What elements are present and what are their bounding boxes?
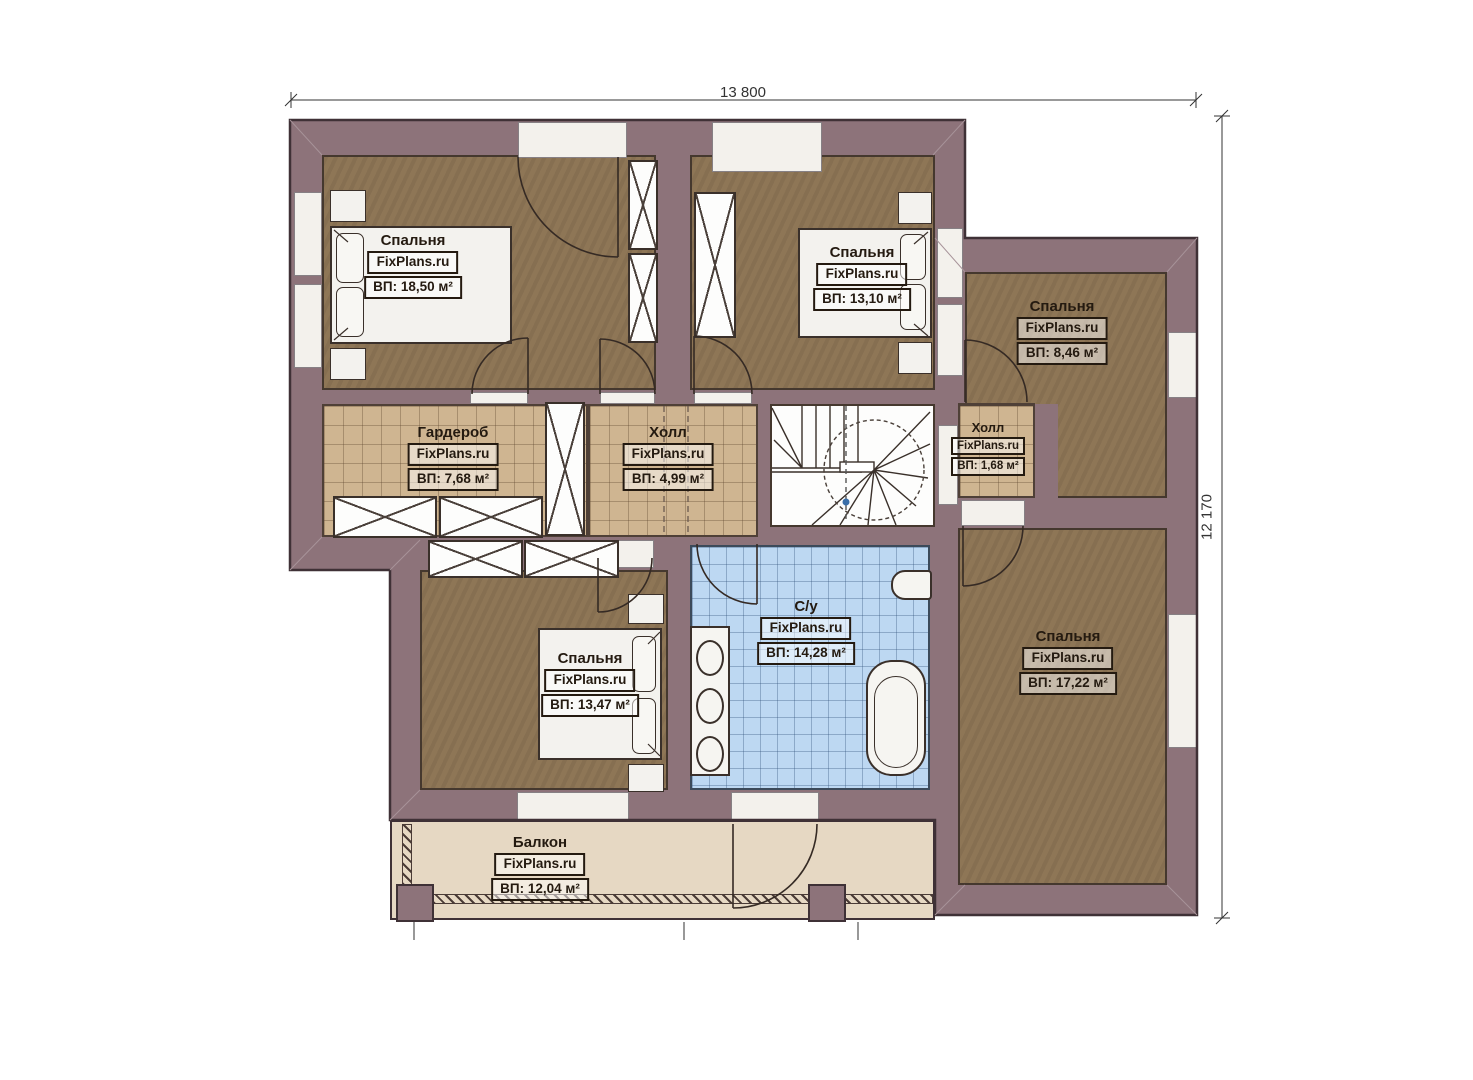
door-opening-bedroom-1a (470, 392, 528, 404)
balcony-railing (402, 894, 933, 904)
closet-wardrobe-1 (333, 496, 437, 538)
staircase-floor (770, 404, 935, 527)
label-bedroom-2: Спальня FixPlans.ru ВП: 13,10 м² (813, 244, 911, 311)
nightstand (330, 348, 366, 380)
floor-plan: 13 800 12 170 Спальня FixPlans.ru ВП: 18… (0, 0, 1473, 1080)
room-name: Балкон (513, 834, 567, 851)
balcony-door-opening (731, 792, 819, 820)
closet-spine-right (694, 192, 736, 338)
window-left-lower (294, 284, 322, 368)
room-area: ВП: 1,68 м² (951, 457, 1025, 475)
room-area: ВП: 17,22 м² (1019, 672, 1117, 695)
sink (696, 640, 724, 676)
nightstand (628, 594, 664, 624)
top-niche-bedroom-2 (712, 122, 822, 172)
closet-bedroom-4-a (428, 540, 523, 578)
door-opening-bedroom-1b (600, 392, 655, 404)
nightstand (898, 342, 932, 374)
label-bedroom-5: Спальня FixPlans.ru ВП: 17,22 м² (1019, 628, 1117, 695)
window-bedroom-5 (1168, 614, 1197, 748)
room-area: ВП: 4,99 м² (623, 468, 713, 491)
balcony-post (396, 884, 434, 922)
label-hall-small: Холл FixPlans.ru ВП: 1,68 м² (951, 420, 1025, 476)
pillow (336, 287, 364, 337)
window-left-upper (294, 192, 322, 276)
brand-tag: FixPlans.ru (817, 263, 908, 286)
room-area: ВП: 7,68 м² (408, 468, 498, 491)
room-name: Спальня (830, 244, 895, 261)
brand-tag: FixPlans.ru (1023, 647, 1114, 670)
door-opening-bedroom-2 (694, 392, 752, 404)
room-bedroom-5-floor (958, 528, 1167, 885)
label-bedroom-4: Спальня FixPlans.ru ВП: 13,47 м² (541, 650, 639, 717)
closet-wardrobe-tall (545, 402, 585, 536)
wall-hall-small-right (1035, 404, 1058, 498)
brand-tag: FixPlans.ru (495, 853, 586, 876)
nightstand (628, 764, 664, 792)
room-name: Спальня (1030, 298, 1095, 315)
nightstand (330, 190, 366, 222)
label-bathroom: С/у FixPlans.ru ВП: 14,28 м² (757, 598, 855, 665)
nightstand (898, 192, 932, 224)
room-balcony-floor (390, 820, 935, 920)
exterior-cutout (290, 570, 390, 820)
brand-tag: FixPlans.ru (545, 669, 636, 692)
label-bedroom-3: Спальня FixPlans.ru ВП: 8,46 м² (1017, 298, 1108, 365)
balcony-post (808, 884, 846, 922)
dimension-top-label: 13 800 (720, 84, 766, 101)
window-bedroom-4-balcony (517, 792, 629, 820)
brand-tag: FixPlans.ru (408, 443, 499, 466)
room-area: ВП: 18,50 м² (364, 276, 462, 299)
brand-tag: FixPlans.ru (1017, 317, 1108, 340)
column-stubs (414, 922, 858, 940)
room-name: Спальня (381, 232, 446, 249)
sink (696, 736, 724, 772)
label-hall-main: Холл FixPlans.ru ВП: 4,99 м² (623, 424, 714, 491)
toilet (891, 570, 932, 600)
room-name: Холл (972, 420, 1005, 435)
label-wardrobe: Гардероб FixPlans.ru ВП: 7,68 м² (408, 424, 499, 491)
brand-tag: FixPlans.ru (623, 443, 714, 466)
closet-spine-left-lower (628, 253, 658, 343)
closet-bedroom-4-b (524, 540, 619, 578)
sink (696, 688, 724, 724)
room-area: ВП: 14,28 м² (757, 642, 855, 665)
niche-bedroom-2-right-lower (937, 304, 963, 376)
room-area: ВП: 13,47 м² (541, 694, 639, 717)
closet-wardrobe-2 (439, 496, 543, 538)
room-name: Спальня (1036, 628, 1101, 645)
brand-tag: FixPlans.ru (761, 617, 852, 640)
window-bedroom-3 (1168, 332, 1197, 398)
room-name: Спальня (558, 650, 623, 667)
room-area: ВП: 13,10 м² (813, 288, 911, 311)
label-bedroom-1: Спальня FixPlans.ru ВП: 18,50 м² (364, 232, 462, 299)
niche-bedroom-2-right-upper (937, 228, 963, 298)
room-name: С/у (794, 598, 817, 615)
bedroom-5-door-opening (961, 500, 1025, 526)
room-area: ВП: 12,04 м² (491, 878, 589, 901)
room-name: Гардероб (418, 424, 489, 441)
brand-tag: FixPlans.ru (951, 437, 1025, 455)
dimension-right-label: 12 170 (1199, 494, 1216, 540)
pillow (336, 233, 364, 283)
top-niche-door-opening (518, 122, 627, 158)
closet-spine-left-upper (628, 160, 658, 250)
label-balcony: Балкон FixPlans.ru ВП: 12,04 м² (491, 834, 589, 901)
brand-tag: FixPlans.ru (368, 251, 459, 274)
room-name: Холл (649, 424, 687, 441)
room-area: ВП: 8,46 м² (1017, 342, 1107, 365)
bathtub-basin (874, 676, 918, 768)
dimension-line-right (1214, 110, 1230, 924)
